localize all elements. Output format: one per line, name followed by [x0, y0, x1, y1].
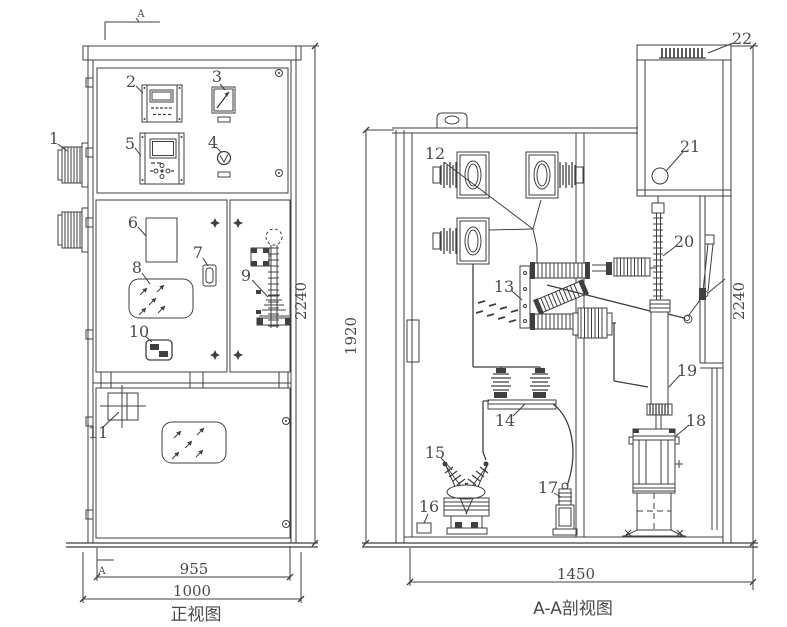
callout-3: 3	[212, 67, 222, 86]
callout-7: 7	[193, 243, 203, 262]
connector-10: 10	[129, 322, 172, 360]
handle-7: 7	[193, 243, 216, 286]
middle-left-door: 6 7 8 10	[96, 200, 227, 372]
callout-12: 12	[425, 144, 445, 163]
callout-20: 20	[674, 232, 694, 251]
bottom-door: 11	[88, 385, 290, 538]
dim-1450-label: 1450	[557, 565, 595, 583]
indicator-4: 4	[208, 133, 231, 177]
callout-15: 15	[425, 443, 445, 462]
section-marker-top: A	[105, 9, 160, 40]
meter-3: 3	[212, 67, 235, 122]
section-marker-top-label: A	[136, 9, 145, 20]
callout-17: 17	[538, 478, 558, 497]
operating-rod-20: 20	[652, 196, 694, 300]
handle-11: 11	[88, 385, 146, 442]
relay-device-2: 2	[126, 72, 182, 122]
ventilation-window-11	[162, 422, 226, 463]
cable-gland-1: 1	[49, 129, 88, 252]
conductors	[473, 264, 692, 486]
dim-955-label: 955	[180, 560, 209, 578]
callout-18: 18	[686, 411, 706, 430]
rear-bushing	[592, 258, 656, 276]
callout-10: 10	[129, 322, 149, 341]
callout-9: 9	[241, 266, 251, 285]
ground-terminal-16: 16	[417, 497, 439, 533]
instrument-door: 2 3	[97, 67, 288, 193]
front-view-caption: 正视图	[171, 605, 222, 625]
callout-4: 4	[208, 133, 218, 152]
callout-19: 19	[677, 361, 697, 380]
relay-device-5: 5	[125, 133, 184, 184]
dimension-1450: 1450	[407, 548, 756, 586]
section-view-drawing: 22 21	[342, 29, 758, 619]
voltage-transformer-15: 15	[425, 443, 489, 534]
callout-14: 14	[495, 411, 515, 430]
dimension-2240-section: 2240	[730, 43, 758, 590]
switchgear-technical-drawing: A 1	[0, 0, 787, 627]
section-marker-bottom: A	[97, 548, 114, 577]
callout-6: 6	[128, 213, 138, 232]
nameplate-6: 6	[128, 213, 177, 262]
dim-2240-section-label: 2240	[730, 282, 748, 320]
louvre-grille-22	[659, 48, 706, 58]
callout-22: 22	[732, 29, 752, 48]
callout-16: 16	[419, 497, 439, 516]
callout-11: 11	[88, 423, 108, 442]
mechanism-box-18: 18	[622, 411, 706, 536]
front-view-drawing: A 1	[49, 9, 319, 625]
callout-21: 21	[680, 137, 700, 156]
callout-8: 8	[132, 258, 142, 277]
dimension-1920: 1920	[342, 127, 394, 546]
dim-2240-front-label: 2240	[292, 282, 310, 320]
rear-top-box: 22 21	[637, 29, 752, 196]
section-view-caption: A-A剖视图	[533, 599, 613, 619]
callout-13: 13	[494, 277, 514, 296]
surge-arrester-17: 17	[538, 478, 577, 535]
dimension-955: 955	[94, 546, 293, 581]
through-wall-insulator	[573, 308, 612, 338]
dim-1920-label: 1920	[342, 317, 360, 355]
callout-1: 1	[49, 129, 59, 148]
dim-1000-label: 1000	[173, 582, 211, 600]
ventilation-window-8: 8	[129, 258, 193, 318]
callout-5: 5	[125, 134, 135, 153]
callout-2: 2	[126, 72, 136, 91]
post-insulators-14: 14	[488, 368, 556, 430]
insulator-assembly-9: 9	[241, 229, 291, 328]
inspection-hole-21: 21	[652, 137, 700, 184]
bushing-12: 12	[425, 144, 583, 264]
middle-right-door: 9	[230, 200, 291, 372]
